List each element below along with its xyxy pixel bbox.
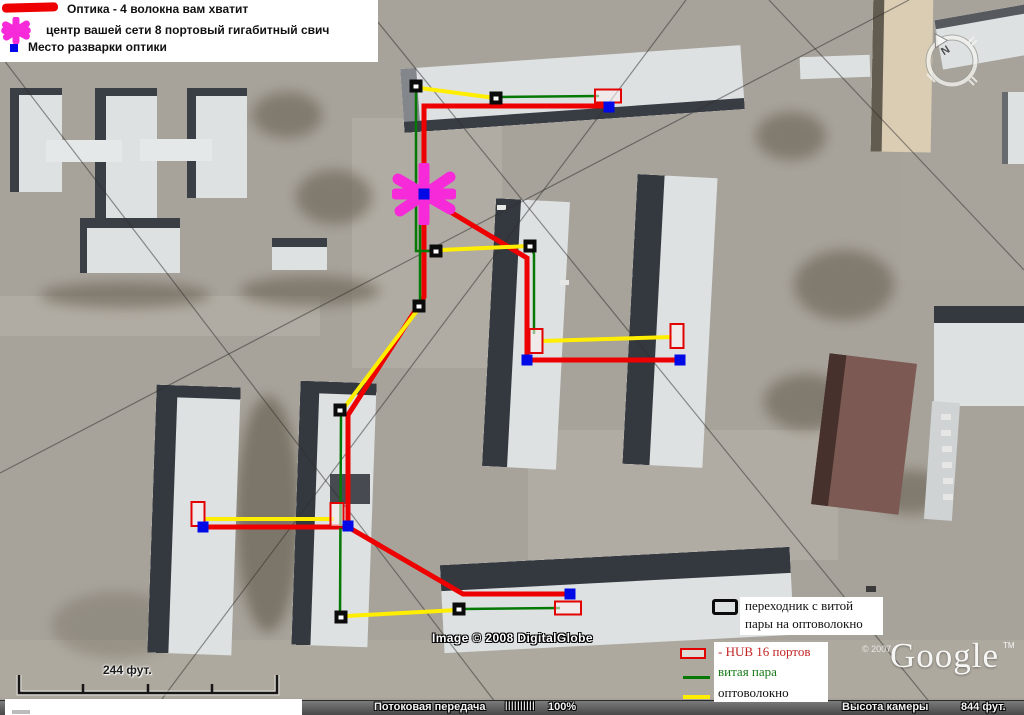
car [943,478,953,484]
twisted-pair-line-icon [683,676,710,679]
compass-north-letter: N [939,44,952,58]
legend-adapter-line1: переходник с витой [745,598,853,614]
streaming-percent: 100% [548,701,576,713]
google-trademark: TM [1003,641,1015,650]
car [560,280,569,285]
car [942,462,952,468]
scale-bar [16,672,280,698]
garage [330,474,370,504]
building [811,353,917,515]
car [941,414,951,420]
compass-control[interactable]: N [918,28,986,99]
red-optic-line-icon [2,2,58,12]
legend-fiber-label: оптоволокно [718,685,789,701]
adapter-icon [712,599,738,615]
car [497,205,506,210]
magenta-star-icon [1,17,31,44]
image-credit: Image © 2008 DigitalGlobe [432,631,593,645]
streaming-label: Потоковая передача [374,701,486,713]
legend-splice-label: Место разварки оптики [28,40,167,54]
hub-icon [680,648,706,659]
car [941,430,951,436]
blue-square-icon [10,44,18,52]
trees [296,170,372,224]
legend-hub-label: - HUB 16 портов [718,644,810,660]
car [866,586,876,592]
camera-altitude-value: 844 фут. [961,701,1006,713]
building [400,45,745,133]
trees [240,276,380,306]
building [80,218,180,273]
legend-top-left: Оптика - 4 волокна вам хватит центр ваше… [0,0,378,62]
streaming-progress-bars: |||||||||| [505,700,535,710]
car [942,446,952,452]
building [934,306,1024,406]
fiber-line-icon [683,695,710,699]
trees [236,396,300,632]
building [140,139,212,161]
trees [252,92,322,138]
trees [794,250,894,320]
trees [40,282,210,308]
google-logo: Google [890,636,999,676]
legend-switch-label: центр вашей сети 8 портовый гигабитный с… [46,23,329,37]
legend-optic-label: Оптика - 4 волокна вам хватит [67,2,248,16]
building [291,381,376,647]
bottom-left-cover-box [5,699,302,715]
building [1002,92,1024,164]
camera-altitude-label: Высота камеры [842,701,928,713]
car [943,494,953,500]
building [800,55,871,79]
google-copyright-year: © 2007 [862,644,891,654]
building [272,238,327,270]
building [147,385,240,656]
google-earth-map-viewport[interactable]: Оптика - 4 волокна вам хватит центр ваше… [0,0,1024,715]
building [46,140,122,162]
cover-box-notch [12,710,30,714]
paved-yard [352,118,502,368]
trees [756,112,826,160]
legend-adapter-line2: пары на оптоволокно [745,616,863,632]
legend-twisted-pair-label: витая пара [718,664,777,680]
building [482,198,570,470]
building [622,174,717,468]
